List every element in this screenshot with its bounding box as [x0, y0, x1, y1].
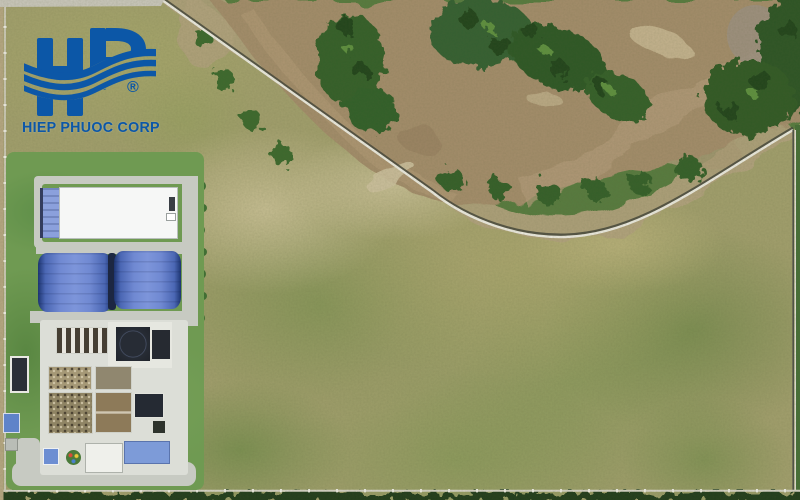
company-name: HIEP PHUOC CORP [22, 119, 160, 136]
aerial-photo: ® HIEP PHUOC CORP [0, 0, 800, 500]
west-gray-hut [5, 438, 18, 451]
sludge-basin-2 [48, 392, 93, 434]
registered-mark: ® [127, 79, 139, 96]
flower-garden-circle [66, 450, 81, 465]
clarifier-tank-2 [152, 330, 170, 359]
blue-canopy [124, 441, 170, 464]
company-logo: ® [24, 24, 156, 124]
blue-warehouse-west [38, 253, 112, 312]
west-blue-hut [3, 413, 20, 433]
roof-vent-dark [169, 197, 175, 211]
aeration-lanes [56, 327, 108, 354]
white-roof-warehouse [40, 185, 182, 241]
sludge-basin-1 [48, 366, 92, 390]
warehouse-blue-end [40, 188, 59, 238]
small-dark-tank [152, 420, 166, 434]
dark-storage-tank [134, 393, 164, 418]
clarifier-tank-1 [116, 327, 150, 361]
roof-vent-white [166, 213, 176, 221]
warehouse-white-roof [59, 187, 178, 239]
water-basin-2 [95, 392, 132, 433]
road-stub [16, 438, 40, 472]
west-dark-tank [10, 356, 29, 393]
water-basin-1 [95, 366, 132, 390]
blue-warehouse-east [114, 251, 181, 309]
road-east-side [182, 176, 198, 326]
blue-hut [43, 448, 59, 465]
plant-office-building [85, 443, 123, 473]
